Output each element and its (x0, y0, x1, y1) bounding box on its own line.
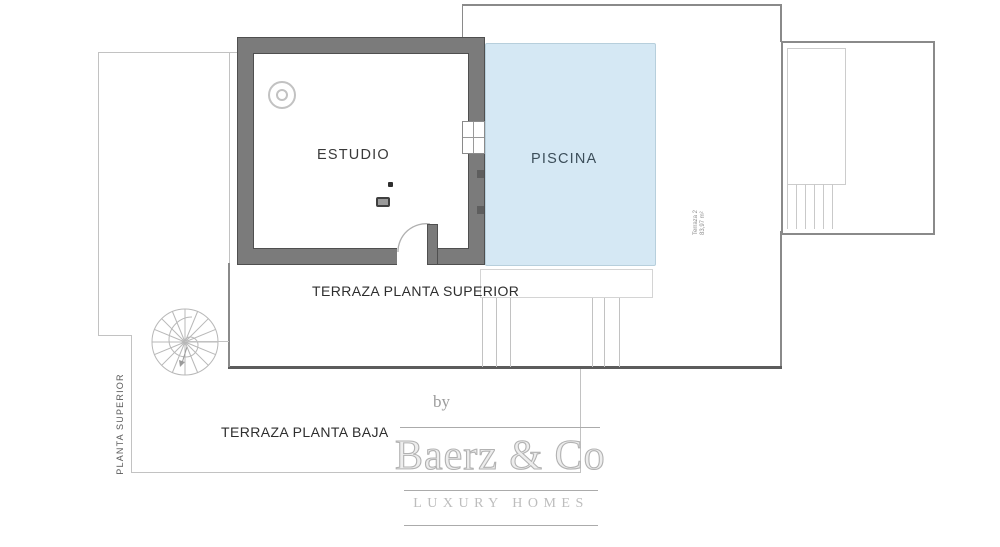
baja-outline-left (98, 52, 99, 336)
window-mullion-h (463, 137, 484, 138)
terraza-superior-label: TERRAZA PLANTA SUPERIOR (312, 283, 519, 299)
step-line (604, 298, 605, 367)
step-line (592, 298, 593, 367)
watermark-brand: Baerz & Co (395, 435, 605, 477)
spiral-staircase-icon (150, 307, 220, 377)
terrace-boundary-top (462, 4, 782, 6)
terrace-boundary-topleft-v (462, 4, 463, 41)
estudio-label: ESTUDIO (317, 147, 390, 163)
door-leaf (428, 225, 437, 264)
watermark-tagline: LUXURY HOMES (398, 496, 604, 512)
ceiling-light-inner-icon (276, 89, 288, 101)
watermark-rule-middle (404, 490, 598, 491)
step-line (482, 298, 483, 367)
piscina-label: PISCINA (531, 151, 597, 167)
terrace-boundary-right-lower-v (780, 231, 782, 368)
baja-outline-inner-v (229, 52, 230, 264)
step-line (619, 298, 620, 367)
watermark-by: by (433, 392, 450, 412)
annex-stairs (787, 184, 834, 229)
terrace-boundary-bottom (228, 366, 782, 369)
watermark-rule-bottom (404, 525, 598, 526)
ceiling-light-icon (268, 81, 296, 109)
step-line (496, 298, 497, 367)
step-line (510, 298, 511, 367)
watermark-rule-top (400, 427, 600, 428)
stair-landing-line (185, 341, 229, 342)
floor-outlet-icon (376, 197, 390, 207)
annex-inner-rect (787, 48, 846, 185)
baja-outline-notch-v (131, 335, 132, 473)
floor-dot-icon (388, 182, 393, 187)
annex-note: Terraza 2 83,97 m² (678, 206, 722, 222)
terrace-boundary-right-upper-v (780, 4, 782, 42)
planta-superior-label: PLANTA SUPERIOR (115, 369, 127, 479)
wall-tick-lower (477, 206, 484, 214)
wall-tick-upper (477, 170, 484, 178)
terrace-left-edge (228, 263, 230, 367)
baja-outline-top (98, 52, 238, 53)
annex-note-line1: Terraza 2 (693, 191, 700, 235)
baja-outline-notch-h (98, 335, 132, 336)
annex-note-line2: 83,97 m² (700, 191, 707, 235)
window-icon (462, 121, 485, 154)
floor-plan: Terraza 2 83,97 m² ESTUDIO PISCINA TERRA… (0, 0, 1000, 547)
terraza-baja-label: TERRAZA PLANTA BAJA (221, 424, 389, 440)
watermark-logo: by Baerz & Co LUXURY HOMES (395, 390, 605, 530)
